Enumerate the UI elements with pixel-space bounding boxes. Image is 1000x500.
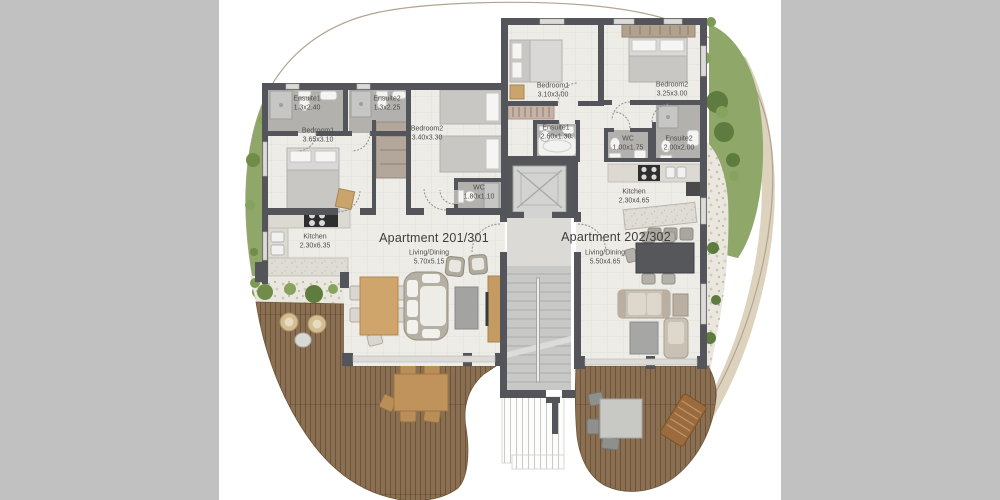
apt1-closet [376,122,410,178]
floorplan-drawing [0,0,1000,500]
apt1-balcony-window [353,356,495,362]
tv [486,292,489,326]
apt1-coffee-table [455,287,478,329]
fridge [686,182,700,196]
side-table [295,333,311,347]
apt1-sofa [404,272,448,340]
deck-right [575,366,716,491]
kitchen-sink [666,167,675,178]
apt2-ottoman [630,322,658,354]
staircase [507,266,571,390]
entry-wall [552,397,558,434]
apt2-bedroom1-bed [510,40,562,82]
entry-steps [502,397,564,469]
apt2-nightstand [510,85,524,99]
apt1-nightstand [335,189,354,210]
floorplan-image: Apartment 201/301 Apartment 202/302 Ensu… [0,0,1000,500]
stool [680,228,693,240]
apt2-balcony-window [585,359,697,365]
apt2-bedroom2-wardrobe [622,24,695,37]
apt1-tv-console [486,276,502,342]
cooktop [638,165,660,181]
apt2-bedroom2-bed [629,38,687,82]
apt1-bedroom1-bed [287,148,339,212]
apt2-side-table [673,294,688,316]
apt2-sofa [618,290,670,318]
apt2-wardrobe-rail [508,105,554,119]
stair-core [503,156,575,390]
apt2-lounge-chair [664,318,688,358]
kitchen-sink [271,232,284,242]
stair-handrail [537,278,540,382]
landing-floor [507,218,571,266]
